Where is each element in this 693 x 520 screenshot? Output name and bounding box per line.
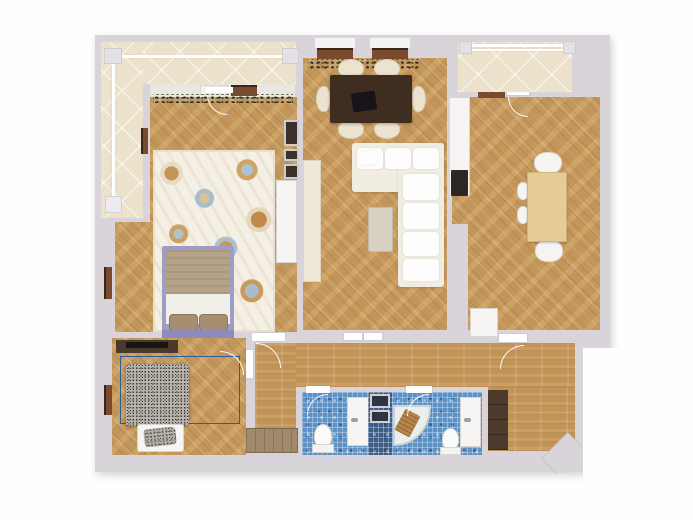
- bathroom1-door-leaf: [306, 386, 330, 393]
- wall-niche-panel: [284, 164, 299, 179]
- living-double-door-leaf: [364, 333, 382, 340]
- bathroom1-vanity: [347, 397, 369, 446]
- ottoman: [368, 207, 393, 252]
- laptop: [351, 90, 377, 112]
- living-radiator: [372, 48, 408, 59]
- sofa-cushion: [385, 148, 411, 169]
- sofa-cushion: [413, 148, 439, 169]
- shaft-panel: [370, 410, 390, 423]
- living-plant-garland: [308, 59, 420, 69]
- shaft-panel: [370, 394, 390, 408]
- bed-pillow: [199, 314, 228, 331]
- bench-pillow: [143, 426, 177, 447]
- balcony-right-railing: [468, 49, 566, 51]
- living-window: [370, 38, 410, 48]
- floor-plan-canvas: [0, 0, 693, 520]
- kitchen-table: [527, 172, 567, 242]
- wardrobe-white: [276, 180, 297, 263]
- faucet-icon: [464, 418, 471, 422]
- balcony-left-railing-side: [112, 55, 115, 203]
- hall-wardrobe-dark: [488, 390, 508, 450]
- bed-pillow: [169, 314, 198, 331]
- living-window: [315, 38, 355, 48]
- balcony-right-railing: [468, 44, 566, 47]
- railing-post: [563, 41, 576, 54]
- tv-flat: [126, 342, 168, 348]
- sofa-cushion: [403, 259, 439, 281]
- railing-post: [104, 48, 122, 64]
- footprint-cutout: [583, 348, 693, 520]
- toilet-tank: [312, 444, 334, 453]
- faucet-icon: [351, 418, 358, 422]
- living-radiator: [317, 48, 353, 59]
- dining-chair: [412, 86, 426, 112]
- exterior-wall-radiator: [104, 267, 112, 299]
- bed2-tweed-blanket: [126, 364, 189, 426]
- fridge: [470, 308, 498, 337]
- balcony-left-railing-top: [112, 55, 290, 58]
- tv-cabinet: [303, 160, 321, 282]
- bedroom2-door-leaf: [246, 350, 253, 378]
- railing-post: [282, 48, 299, 64]
- railing-post: [459, 41, 472, 54]
- toilet-tank: [440, 447, 461, 455]
- kitchen-tall-cabinet: [449, 224, 468, 337]
- living-double-door-leaf: [344, 333, 362, 340]
- bedroom1-door-leaf: [252, 333, 285, 341]
- bedroom1-wall-radiator: [141, 128, 148, 154]
- bed-master-blanket: [166, 250, 230, 294]
- dining-chair: [338, 121, 364, 139]
- wall-niche-panel: [284, 120, 299, 146]
- balcony-left-floor-strip: [101, 42, 143, 218]
- kitchen-door-leaf: [499, 334, 527, 342]
- bedroom2-wall-radiator: [104, 385, 112, 415]
- kitchen-chair: [534, 152, 562, 174]
- dining-chair: [374, 121, 400, 139]
- bathroom2-vanity: [460, 397, 481, 447]
- kitchen-chair: [535, 240, 563, 262]
- dining-chair: [316, 86, 330, 112]
- corridor-floor: [255, 343, 575, 387]
- railing-post: [105, 196, 122, 213]
- sofa-cushion: [403, 174, 439, 200]
- master-bedroom-floor-ext: [115, 222, 150, 332]
- cooktop: [451, 170, 468, 196]
- sofa-cushion: [403, 232, 439, 256]
- sofa-cushion: [403, 203, 439, 229]
- bathroom2-door-leaf: [406, 386, 432, 393]
- wall-niche-panel: [284, 149, 299, 161]
- bedroom1-balcony-door-leaf: [205, 87, 233, 93]
